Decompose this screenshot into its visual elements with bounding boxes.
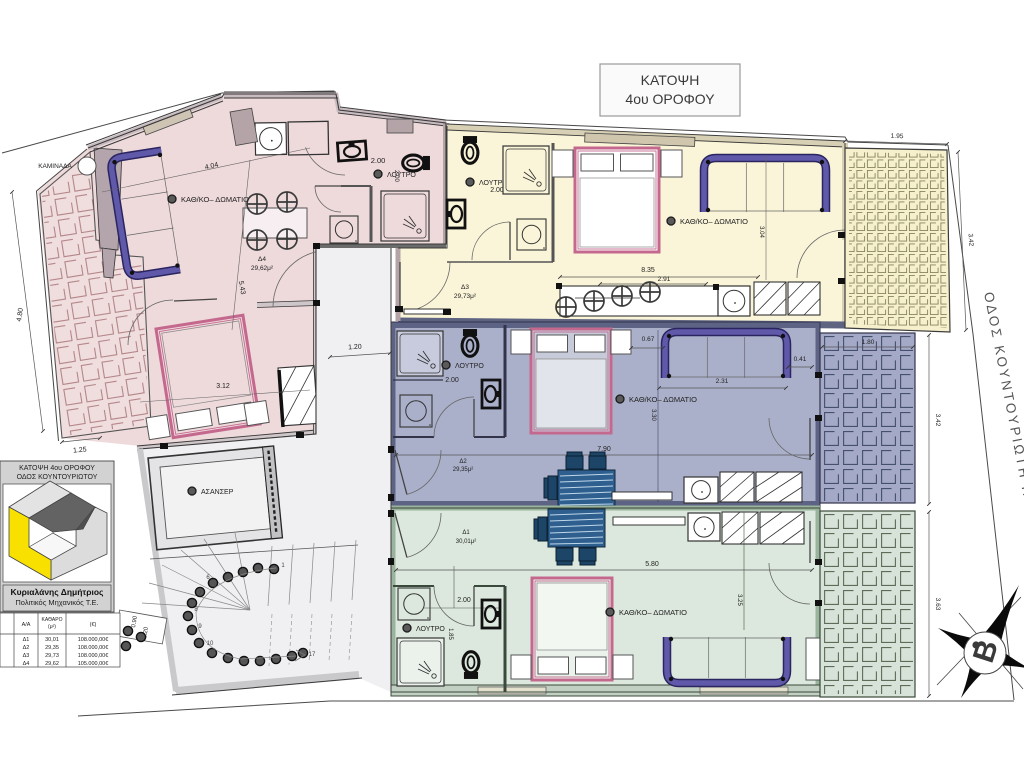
svg-text:1.80: 1.80	[862, 339, 875, 346]
svg-text:3.42: 3.42	[934, 414, 941, 427]
svg-text:5.80: 5.80	[645, 561, 659, 568]
svg-text:108.000,00€: 108.000,00€	[78, 637, 109, 643]
svg-text:29,35: 29,35	[45, 645, 59, 651]
svg-text:Δ2: Δ2	[23, 645, 30, 651]
svg-text:4.80: 4.80	[16, 307, 25, 322]
svg-text:Δ3: Δ3	[23, 653, 30, 659]
svg-text:ΚΑΤΟΨΗ 4ου ΟΡΟΦΟΥ: ΚΑΤΟΨΗ 4ου ΟΡΟΦΟΥ	[19, 465, 95, 472]
svg-text:ΚΑΘ/ΚΟ– ΔΩΜΑΤΙΟ: ΚΑΘ/ΚΟ– ΔΩΜΑΤΙΟ	[181, 195, 249, 204]
svg-text:2.31: 2.31	[716, 378, 729, 385]
svg-text:3.30: 3.30	[650, 409, 656, 421]
svg-text:ΚΑΘΑΡΟ: ΚΑΘΑΡΟ	[42, 617, 63, 623]
svg-text:ΚΑΜΙΝΑΔΑ: ΚΑΜΙΝΑΔΑ	[38, 163, 72, 170]
svg-text:2.00: 2.00	[490, 187, 504, 194]
svg-text:Δ2: Δ2	[459, 459, 467, 465]
svg-text:108.000,00€: 108.000,00€	[78, 645, 109, 651]
svg-text:(μ²): (μ²)	[48, 624, 56, 630]
svg-text:10: 10	[207, 641, 214, 647]
svg-text:2.00: 2.00	[371, 156, 386, 165]
svg-text:(€): (€)	[90, 622, 97, 628]
svg-text:1.20: 1.20	[348, 344, 362, 352]
svg-text:17: 17	[309, 652, 316, 658]
svg-text:Α/Α: Α/Α	[22, 622, 31, 628]
svg-text:29,73μ²: 29,73μ²	[454, 293, 477, 300]
svg-text:ΚΑΘ/ΚΟ– ΔΩΜΑΤΙΟ: ΚΑΘ/ΚΟ– ΔΩΜΑΤΙΟ	[629, 395, 697, 404]
svg-text:Δ4: Δ4	[258, 256, 266, 263]
svg-text:2.00: 2.00	[445, 377, 459, 384]
svg-text:3.12: 3.12	[216, 383, 230, 390]
svg-text:ΚΑΘ/ΚΟ– ΔΩΜΑΤΙΟ: ΚΑΘ/ΚΟ– ΔΩΜΑΤΙΟ	[680, 217, 748, 226]
svg-text:4ου ΟΡΟΦΟΥ: 4ου ΟΡΟΦΟΥ	[625, 91, 715, 107]
svg-text:2.00: 2.00	[457, 597, 471, 604]
svg-text:1.85: 1.85	[447, 628, 453, 640]
svg-text:3.25: 3.25	[736, 594, 742, 606]
svg-text:Δ1: Δ1	[23, 637, 30, 643]
svg-text:ΑΣΑΝΣΕΡ: ΑΣΑΝΣΕΡ	[201, 489, 234, 496]
svg-text:ΛΟΥΤΡΟ: ΛΟΥΤΡΟ	[416, 626, 445, 633]
svg-text:8.35: 8.35	[641, 267, 655, 274]
svg-text:ΚΑΘ/ΚΟ– ΔΩΜΑΤΙΟ: ΚΑΘ/ΚΟ– ΔΩΜΑΤΙΟ	[619, 608, 687, 617]
svg-text:ΛΟΥΤΡΟ: ΛΟΥΤΡΟ	[455, 363, 484, 370]
svg-text:0.67: 0.67	[642, 336, 655, 343]
svg-text:ΚΑΤΟΨΗ: ΚΑΤΟΨΗ	[641, 72, 700, 88]
svg-text:1.25: 1.25	[73, 446, 87, 454]
svg-text:2.91: 2.91	[658, 276, 671, 283]
svg-text:ΟΔΟΣ ΚΟΥΝΤΟΥΡΙΩΤΗ ΠΛΑΤΟΣ: ΟΔΟΣ ΚΟΥΝΤΟΥΡΙΩΤΗ ΠΛΑΤΟΣ	[981, 291, 1024, 556]
svg-text:30,01μ²: 30,01μ²	[456, 539, 476, 545]
svg-text:105.000,00€: 105.000,00€	[78, 661, 109, 667]
svg-text:ΛΟΥΤΡΟ: ΛΟΥΤΡΟ	[387, 172, 416, 179]
svg-text:29,62μ²: 29,62μ²	[251, 265, 274, 272]
svg-text:29,35μ²: 29,35μ²	[453, 467, 473, 473]
svg-text:Πολιτικός Μηχανικός Τ.Ε.: Πολιτικός Μηχανικός Τ.Ε.	[15, 598, 98, 607]
svg-text:3.42: 3.42	[967, 233, 975, 246]
svg-text:Δ4: Δ4	[23, 661, 30, 667]
svg-text:1.95: 1.95	[891, 133, 904, 140]
svg-text:Δ3: Δ3	[461, 284, 469, 291]
svg-text:30,01: 30,01	[45, 637, 59, 643]
svg-text:Κυριαλάνης Δημήτριος: Κυριαλάνης Δημήτριος	[11, 587, 104, 597]
svg-text:29,73: 29,73	[45, 653, 59, 659]
svg-text:108.000,00€: 108.000,00€	[78, 653, 109, 659]
svg-text:Δ1: Δ1	[462, 530, 470, 536]
svg-text:ΟΔΟΣ ΚΟΥΝΤΟΥΡΙΩΤΟΥ: ΟΔΟΣ ΚΟΥΝΤΟΥΡΙΩΤΟΥ	[17, 474, 98, 481]
svg-text:0.41: 0.41	[794, 356, 807, 363]
svg-text:2.00: 2.00	[393, 170, 399, 182]
svg-text:3.04: 3.04	[758, 226, 764, 238]
svg-text:29,62: 29,62	[45, 661, 59, 667]
svg-text:3.63: 3.63	[934, 598, 941, 611]
